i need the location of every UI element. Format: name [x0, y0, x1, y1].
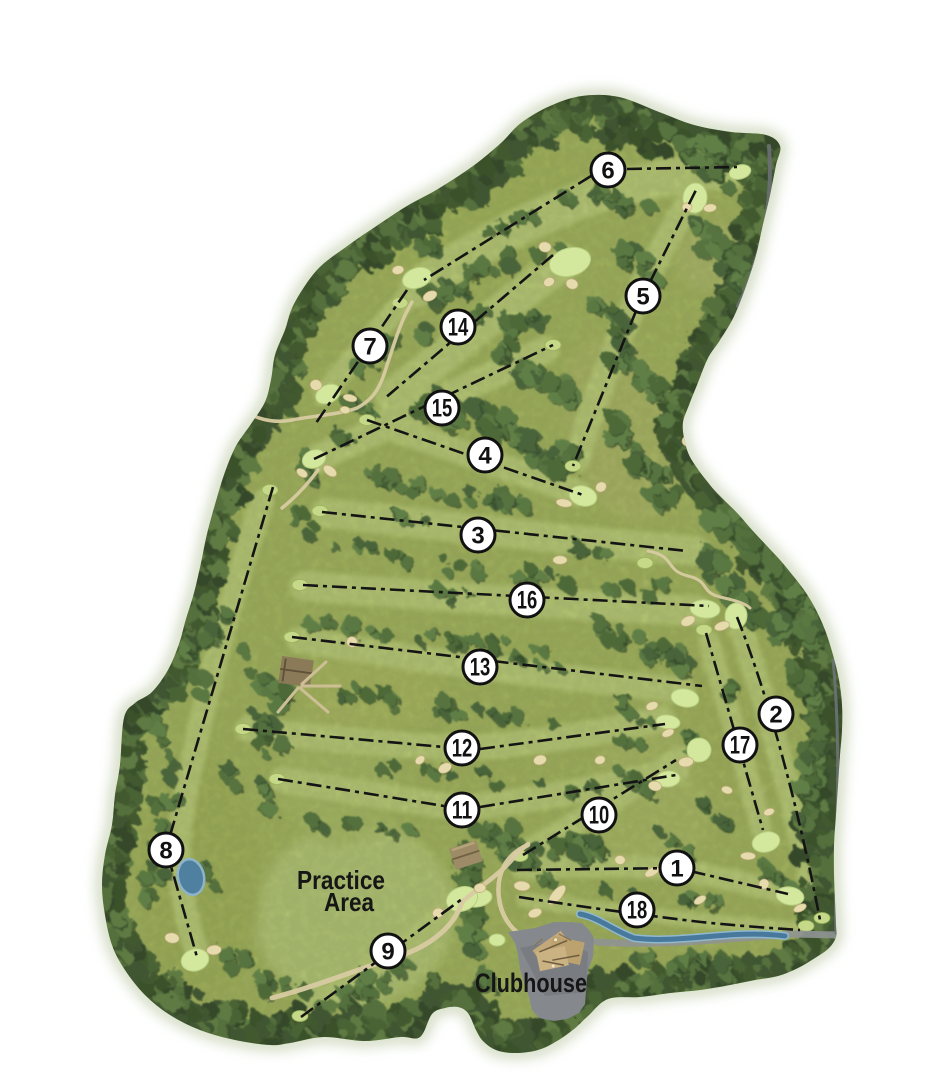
svg-text:16: 16 [517, 587, 538, 615]
svg-text:11: 11 [452, 797, 473, 825]
svg-text:7: 7 [363, 334, 376, 361]
svg-text:14: 14 [448, 314, 469, 342]
svg-text:1: 1 [670, 856, 683, 883]
svg-text:10: 10 [589, 802, 610, 830]
svg-text:5: 5 [636, 284, 649, 311]
svg-text:18: 18 [627, 897, 648, 925]
svg-text:Clubhouse: Clubhouse [475, 968, 587, 998]
svg-text:6: 6 [601, 158, 614, 185]
svg-text:4: 4 [478, 443, 492, 470]
svg-text:9: 9 [381, 939, 394, 966]
svg-text:13: 13 [470, 654, 491, 682]
svg-text:12: 12 [452, 735, 473, 763]
svg-text:17: 17 [730, 732, 751, 760]
svg-text:8: 8 [159, 838, 172, 865]
svg-text:Area: Area [324, 887, 374, 917]
svg-text:3: 3 [471, 523, 484, 550]
svg-text:15: 15 [432, 395, 453, 423]
svg-text:2: 2 [769, 702, 782, 729]
